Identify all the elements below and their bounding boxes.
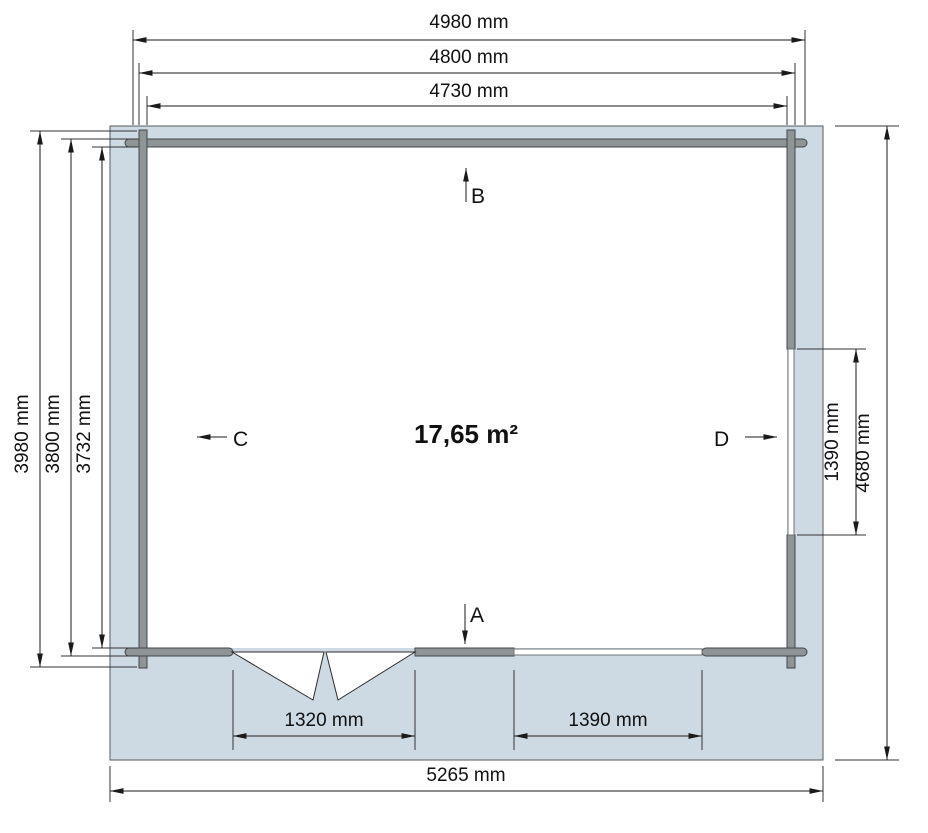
wall-right-upper bbox=[787, 130, 795, 349]
floor-area-label: 17,65 m² bbox=[414, 419, 518, 449]
wall-front-mid bbox=[415, 648, 514, 656]
floor-plan-drawing: 4980 mm 4800 mm 4730 mm 3980 mm 3800 mm … bbox=[0, 0, 928, 833]
dim-door-width-label: 1320 mm bbox=[284, 710, 363, 731]
wall-left bbox=[139, 130, 147, 668]
dim-bottom-overall-label: 5265 mm bbox=[426, 765, 505, 786]
dim-right-window-label: 1390 mm bbox=[822, 402, 843, 481]
dim-left-outer-label: 3980 mm bbox=[12, 394, 33, 473]
dim-top-outer: 4980 mm bbox=[133, 12, 805, 125]
dim-top-outer-label: 4980 mm bbox=[429, 12, 508, 33]
wall-front-right bbox=[702, 648, 807, 656]
dim-left-inner-label: 3732 mm bbox=[74, 394, 95, 473]
floor-plan-canvas: 4980 mm 4800 mm 4730 mm 3980 mm 3800 mm … bbox=[0, 0, 928, 833]
marker-left-label: C bbox=[233, 428, 248, 451]
wall-back bbox=[125, 139, 807, 147]
interior-floor bbox=[147, 147, 787, 648]
marker-front-label: A bbox=[470, 604, 484, 627]
dim-top-inner-label: 4730 mm bbox=[429, 81, 508, 102]
window-front bbox=[514, 649, 702, 655]
dim-top-inner: 4730 mm bbox=[147, 81, 787, 125]
marker-right-label: D bbox=[714, 428, 729, 451]
dim-right-overall-label: 4680 mm bbox=[853, 413, 874, 492]
marker-back-label: B bbox=[471, 185, 485, 208]
dim-right-overall: 4680 mm bbox=[835, 126, 899, 760]
dim-left-mid-label: 3800 mm bbox=[43, 394, 64, 473]
dim-top-mid-label: 4800 mm bbox=[429, 47, 508, 68]
wall-front-left bbox=[125, 648, 233, 656]
window-right bbox=[788, 349, 794, 535]
dim-bottom-overall: 5265 mm bbox=[110, 765, 823, 802]
dim-bottom-window-label: 1390 mm bbox=[568, 710, 647, 731]
